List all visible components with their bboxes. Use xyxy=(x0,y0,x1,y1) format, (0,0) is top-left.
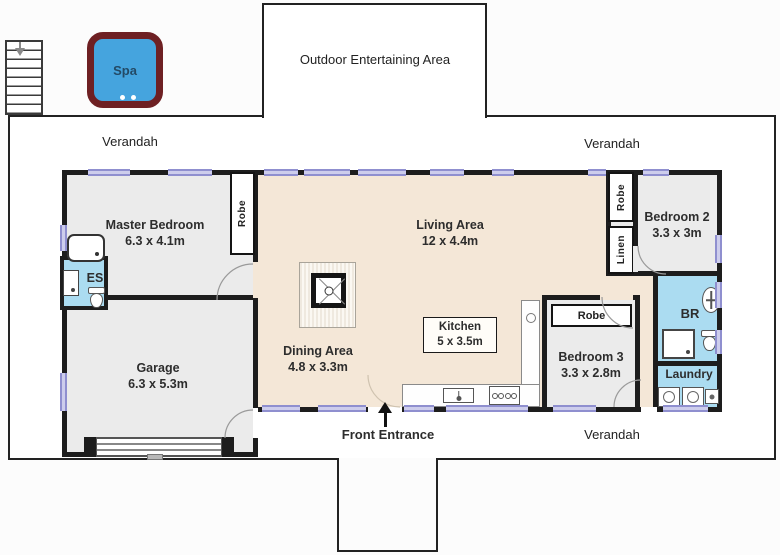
window xyxy=(663,405,708,412)
bedroom3-robe: Robe xyxy=(551,304,632,327)
bedroom3-label: Bedroom 3 3.3 x 2.8m xyxy=(551,350,631,381)
room-name: Living Area xyxy=(375,218,525,234)
window xyxy=(588,169,606,176)
verandah-label-top-left: Verandah xyxy=(70,134,190,150)
room-dims: 4.8 x 3.3m xyxy=(243,360,393,376)
dining-area-label: Dining Area 4.8 x 3.3m xyxy=(243,344,393,375)
window xyxy=(715,330,722,354)
window xyxy=(715,282,722,308)
washer-icon xyxy=(658,387,680,407)
bedroom2-robe-label: Robe xyxy=(616,184,627,211)
bedroom3-door-opening xyxy=(600,295,633,300)
room-dims: 6.3 x 5.3m xyxy=(78,377,238,393)
verandah-label-bottom: Verandah xyxy=(552,427,672,443)
window xyxy=(492,169,514,176)
window xyxy=(404,405,434,412)
kitchen-label: Kitchen 5 x 3.5m xyxy=(423,317,497,353)
room-dims: 3.3 x 3m xyxy=(637,226,717,242)
front-entrance-label: Front Entrance xyxy=(308,427,468,443)
window xyxy=(318,405,366,412)
window xyxy=(358,169,406,176)
garage-door-handle xyxy=(147,454,163,460)
room-name: Bedroom 2 xyxy=(637,210,717,226)
floor-plan: Spa Robe Robe Linen Robe xyxy=(0,0,780,555)
window xyxy=(60,373,67,411)
stairs-arrow-icon xyxy=(15,48,25,56)
window xyxy=(446,405,528,412)
fireplace-icon xyxy=(299,262,356,328)
bedroom3-robe-label: Robe xyxy=(578,310,606,322)
ensuite-label: ES xyxy=(78,271,112,287)
room-name: Kitchen xyxy=(439,320,481,335)
laundry-sink-icon xyxy=(705,389,719,404)
master-robe-label: Robe xyxy=(237,200,248,227)
window xyxy=(168,169,212,176)
spa-jet-icon xyxy=(131,95,136,100)
spa-label: Spa xyxy=(113,63,137,78)
kitchen-sink-icon xyxy=(443,388,474,403)
window xyxy=(60,225,67,251)
window xyxy=(643,169,669,176)
room-dims: 3.3 x 2.8m xyxy=(551,366,631,382)
front-steps-area xyxy=(337,458,438,552)
wall xyxy=(84,437,96,457)
front-entrance-arrow-stem xyxy=(384,412,387,427)
kitchen-bench xyxy=(521,300,540,385)
bedroom2-label: Bedroom 2 3.3 x 3m xyxy=(637,210,717,241)
shower-icon xyxy=(662,329,695,359)
linen-label: Linen xyxy=(616,235,627,264)
shower-icon xyxy=(63,270,79,296)
room-dims: 6.3 x 4.1m xyxy=(75,234,235,250)
verandah-label-top-right: Verandah xyxy=(552,136,672,152)
spa-jet-icon xyxy=(120,95,125,100)
wall xyxy=(222,437,234,457)
cooktop-icon xyxy=(489,386,520,405)
hall-door-opening xyxy=(641,407,657,412)
outdoor-area-label: Outdoor Entertaining Area xyxy=(263,52,487,68)
room-dims: 12 x 4.4m xyxy=(375,234,525,250)
living-area-label: Living Area 12 x 4.4m xyxy=(375,218,525,249)
bathroom-label: BR xyxy=(670,306,710,322)
room-name: Master Bedroom xyxy=(75,218,235,234)
room-name: Garage xyxy=(78,361,238,377)
laundry-label: Laundry xyxy=(649,367,729,382)
window xyxy=(262,405,300,412)
window xyxy=(430,169,464,176)
bedroom2-robe: Robe xyxy=(608,172,634,222)
washer-icon xyxy=(682,387,704,407)
spa-tub: Spa xyxy=(87,32,163,108)
bedroom2-door-opening xyxy=(633,246,638,272)
wall xyxy=(658,361,717,366)
window xyxy=(553,405,596,412)
room-name: Bedroom 3 xyxy=(551,350,631,366)
garage-label: Garage 6.3 x 5.3m xyxy=(78,361,238,392)
linen-cupboard: Linen xyxy=(608,226,634,274)
window xyxy=(264,169,298,176)
window xyxy=(88,169,130,176)
room-dims: 5 x 3.5m xyxy=(437,335,482,350)
garage-door-opening xyxy=(253,408,258,438)
window xyxy=(304,169,350,176)
room-name: Dining Area xyxy=(243,344,393,360)
toilet-icon xyxy=(88,287,105,308)
master-bedroom-label: Master Bedroom 6.3 x 4.1m xyxy=(75,218,235,249)
master-door-opening xyxy=(253,262,258,298)
